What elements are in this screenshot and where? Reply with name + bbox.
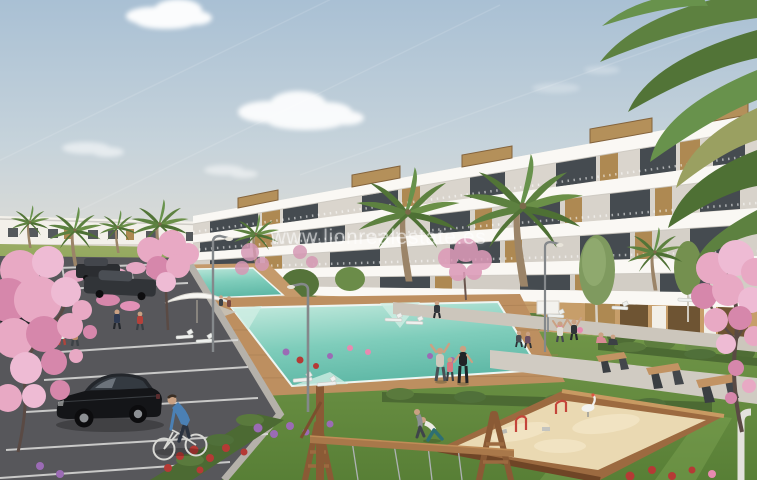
property-render-image: www.lionrealestate.es	[0, 0, 757, 480]
